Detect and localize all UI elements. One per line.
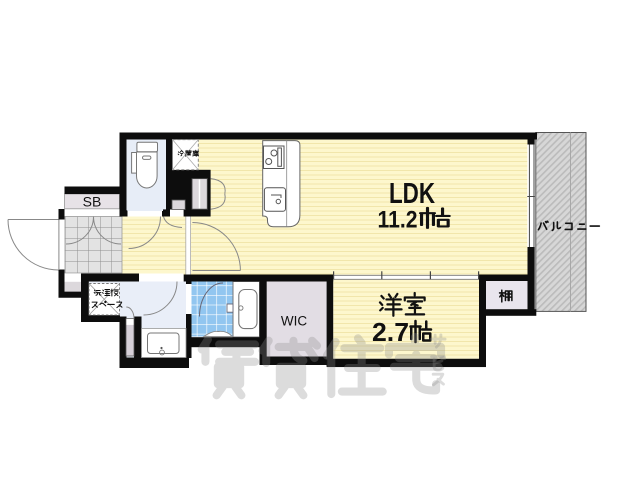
svg-text:WIC: WIC xyxy=(281,314,307,329)
svg-text:11.2: 11.2 xyxy=(378,207,418,234)
svg-text:2.7: 2.7 xyxy=(372,317,409,347)
svg-text:SB: SB xyxy=(83,194,102,210)
svg-text:LDK: LDK xyxy=(389,177,435,209)
